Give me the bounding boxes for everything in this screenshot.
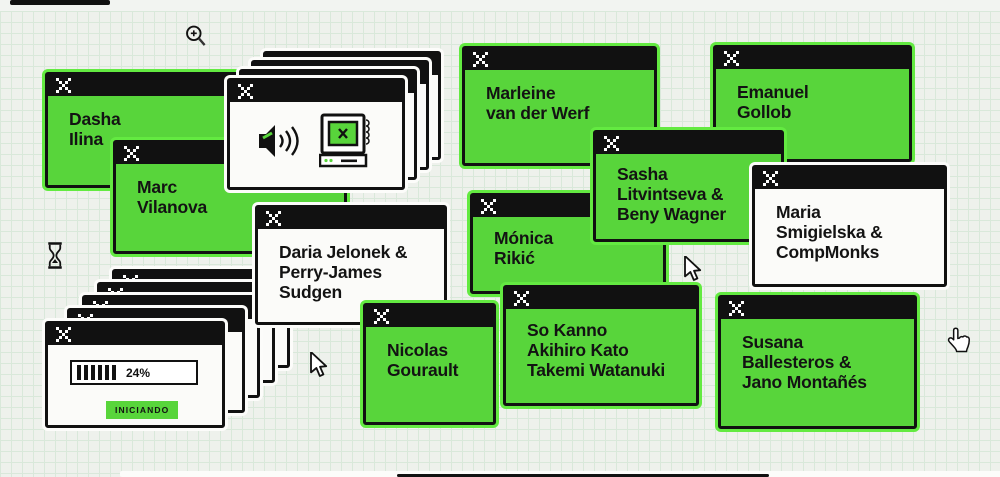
window-nicolas[interactable]: Nicolas Gourault — [363, 303, 496, 425]
window-titlebar — [464, 48, 655, 70]
monitor-icon — [319, 113, 375, 169]
speaker-icon — [257, 121, 303, 161]
progress-percent: 24% — [126, 366, 150, 380]
window-titlebar — [365, 305, 494, 327]
iniciando-button[interactable]: INICIANDO — [106, 401, 178, 419]
close-icon[interactable] — [729, 301, 744, 316]
progress-bar: 24% — [70, 360, 198, 385]
close-icon[interactable] — [238, 84, 253, 99]
close-icon[interactable] — [374, 309, 389, 324]
artist-name: So Kanno Akihiro Kato Takemi Watanuki — [527, 320, 696, 380]
window-titlebar — [715, 47, 910, 69]
window-titlebar — [257, 207, 445, 229]
window-titlebar — [754, 167, 945, 189]
offscreen-window-edge-top — [10, 0, 110, 5]
window-loader[interactable]: 24% INICIANDO — [45, 321, 225, 428]
window-titlebar — [505, 287, 697, 309]
close-icon[interactable] — [724, 51, 739, 66]
window-titlebar — [720, 297, 915, 319]
close-icon[interactable] — [124, 146, 139, 161]
hand-cursor-icon — [946, 326, 970, 356]
close-icon[interactable] — [473, 52, 488, 67]
collage-canvas: Dasha Ilina Marc Vilanova — [0, 0, 1000, 477]
artist-name: Marleine van der Werf — [486, 83, 654, 123]
artist-name: Emanuel Gollob — [737, 82, 909, 122]
hourglass-cursor-icon — [46, 242, 64, 269]
close-icon[interactable] — [763, 171, 778, 186]
close-icon[interactable] — [604, 136, 619, 151]
window-titlebar — [229, 80, 403, 102]
artist-name: Maria Smigielska & CompMonks — [776, 202, 944, 262]
arrow-cursor-icon — [683, 256, 705, 282]
arrow-cursor-icon — [309, 352, 331, 378]
window-so-kanno[interactable]: So Kanno Akihiro Kato Takemi Watanuki — [503, 285, 699, 406]
artist-name: Daria Jelonek & Perry-James Sudgen — [279, 242, 444, 302]
close-icon[interactable] — [266, 211, 281, 226]
window-titlebar — [47, 323, 223, 345]
window-titlebar — [595, 132, 782, 154]
window-maria-compmonks[interactable]: Maria Smigielska & CompMonks — [752, 165, 947, 287]
close-icon[interactable] — [514, 291, 529, 306]
artist-name: Susana Ballesteros & Jano Montañés — [742, 332, 914, 392]
zoom-cursor-icon — [185, 24, 207, 50]
window-sound-computer[interactable] — [227, 78, 405, 190]
artist-name: Nicolas Gourault — [387, 340, 493, 380]
close-icon[interactable] — [56, 327, 71, 342]
window-susana-jano[interactable]: Susana Ballesteros & Jano Montañés — [718, 295, 917, 429]
close-icon[interactable] — [481, 199, 496, 214]
close-icon[interactable] — [56, 78, 71, 93]
